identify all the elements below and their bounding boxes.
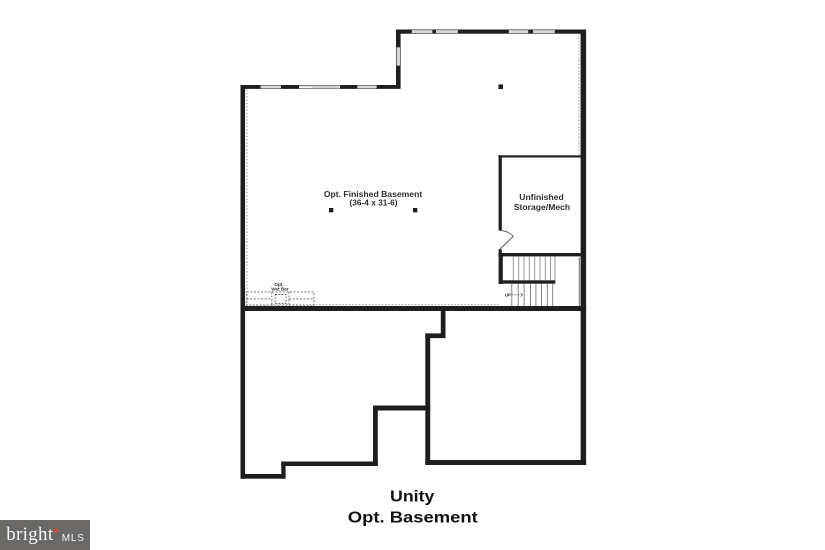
- svg-text:Storage/Mech: Storage/Mech: [514, 202, 570, 212]
- svg-text:UP: UP: [505, 293, 511, 298]
- svg-text:Unfinished: Unfinished: [519, 192, 563, 202]
- svg-text:bright: bright: [6, 524, 54, 545]
- svg-text:MLS: MLS: [62, 533, 85, 544]
- svg-text:Unity: Unity: [390, 488, 435, 506]
- svg-text:Opt. Basement: Opt. Basement: [348, 509, 478, 526]
- svg-text:(36-4 x 31-6): (36-4 x 31-6): [350, 197, 398, 207]
- svg-text:Wet Bar: Wet Bar: [271, 287, 288, 292]
